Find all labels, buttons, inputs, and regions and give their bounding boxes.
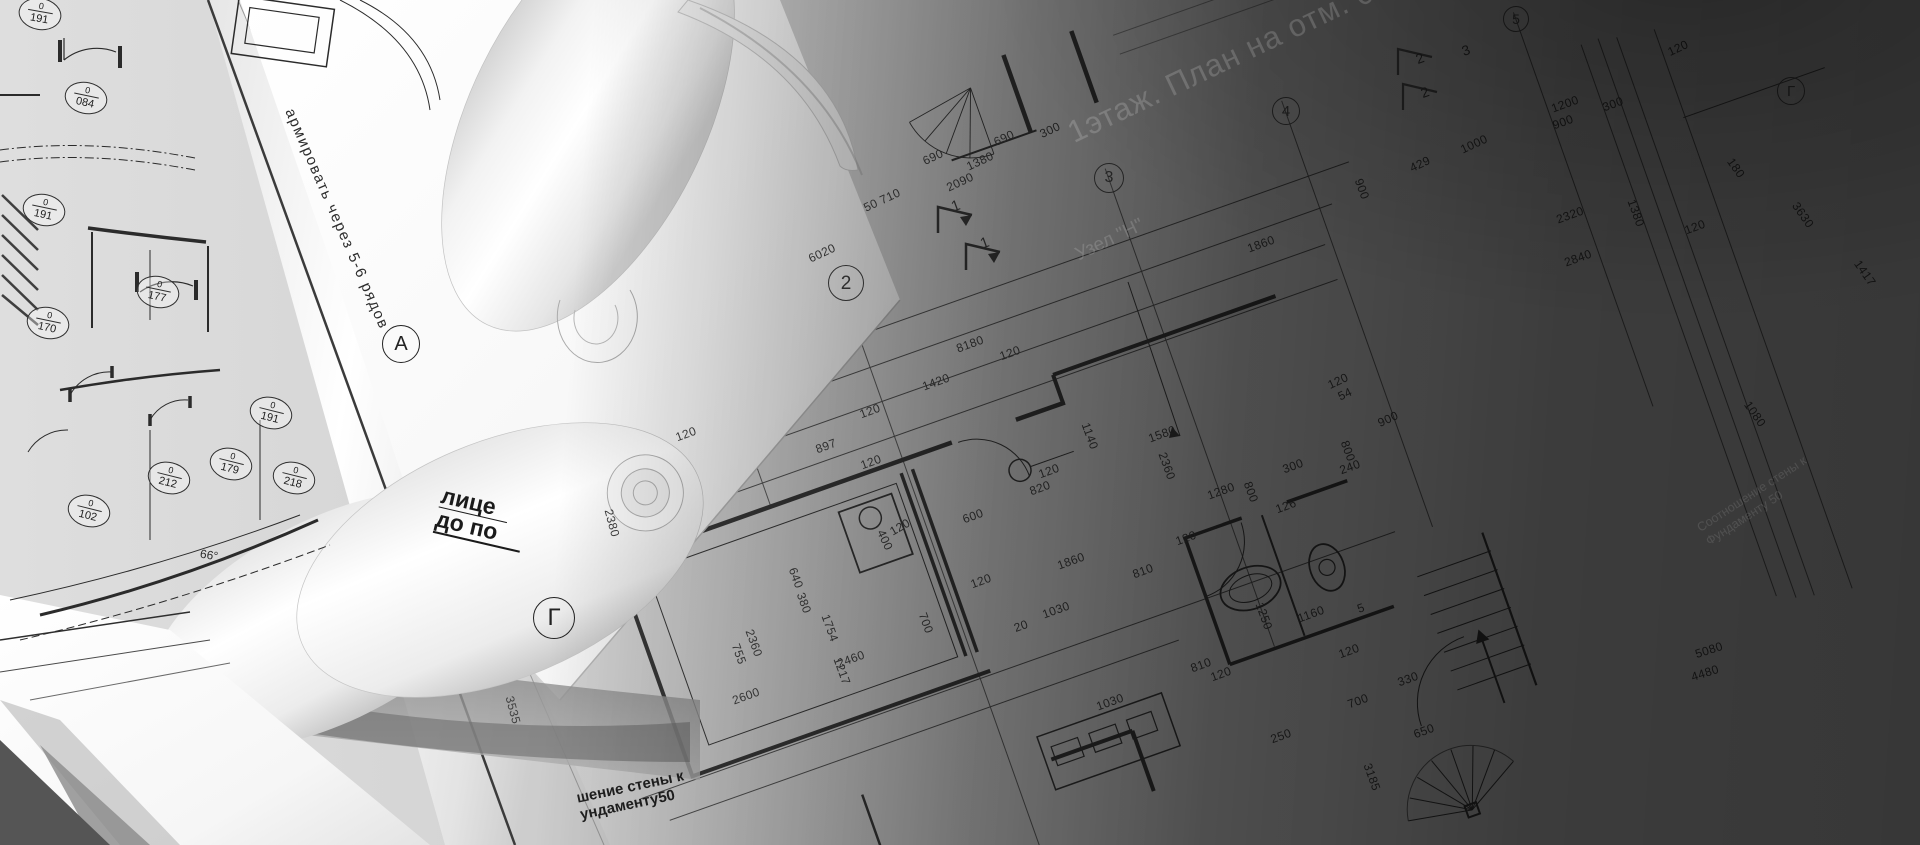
- dimension-label: 50 710: [862, 186, 903, 213]
- dimension-label: 120: [1174, 529, 1198, 548]
- dimension-label: 120: [674, 425, 698, 444]
- wall-foundation-note-left: шение стены к ундаменту50: [575, 767, 689, 823]
- room-tag: 0170: [24, 303, 73, 343]
- dimension-label: 2360: [1157, 451, 1178, 482]
- dimension-label: 3185: [1362, 762, 1383, 793]
- dimension-label: 380: [795, 591, 814, 615]
- dimension-label: 429: [1408, 154, 1432, 174]
- dimension-label: 1380: [1626, 198, 1647, 229]
- room-tag: 0191: [16, 0, 64, 33]
- dimension-label: 2380: [603, 508, 622, 538]
- dimension-label: 700: [917, 611, 936, 635]
- dimension-label: 1860: [1246, 234, 1277, 255]
- dimension-label: 120: [1037, 462, 1061, 481]
- dimension-label: 1140: [1080, 421, 1101, 451]
- dimension-label: 5080: [1694, 640, 1725, 660]
- dimension-label: 120: [1337, 642, 1361, 661]
- dimension-label: 2: [1414, 50, 1426, 66]
- dimension-label: 1: [978, 234, 991, 251]
- dimension-label: 120: [1666, 38, 1690, 58]
- dimension-label: 1080: [1742, 399, 1768, 429]
- dimension-label: 120: [998, 344, 1022, 363]
- face-note-line2: до по: [433, 508, 525, 553]
- dimension-label: 3535: [504, 695, 523, 725]
- dimension-label: 330: [1396, 670, 1420, 689]
- dimension-label: 2090: [945, 171, 976, 194]
- room-tag-value: 191: [30, 205, 57, 224]
- dimension-label: 20: [1012, 618, 1029, 634]
- blueprint-photo-scene: армировать через 5-6 рядов лице до по ше…: [0, 0, 1920, 845]
- dimension-label: 1: [949, 197, 962, 214]
- dimension-label: 300: [1038, 120, 1062, 140]
- room-tag-value: 084: [72, 93, 99, 112]
- dimension-label: 900: [1376, 409, 1400, 429]
- dimension-label: 126: [1274, 497, 1298, 516]
- dimension-label: 1030: [1041, 600, 1072, 621]
- room-tag: 0218: [269, 457, 318, 498]
- room-tag-value: 170: [34, 318, 61, 337]
- room-tag: 0191: [20, 190, 69, 230]
- dimension-label: 120: [858, 402, 882, 421]
- dimension-label: 3630: [1790, 200, 1816, 230]
- dimension-label: 180: [1725, 156, 1747, 180]
- dimension-label: 755: [730, 642, 749, 666]
- dimension-label: 820: [1028, 479, 1052, 498]
- reinforcement-note: армировать через 5-6 рядов: [281, 106, 392, 332]
- room-tag-value: 102: [74, 506, 101, 526]
- dimension-label: 690: [921, 147, 945, 167]
- dimension-label: 2840: [1563, 248, 1594, 269]
- room-tag-value: 191: [256, 408, 283, 428]
- dimension-label: 5: [1356, 601, 1367, 615]
- dimension-label: 1030: [1095, 692, 1126, 713]
- dimension-label: 120: [859, 453, 883, 472]
- dimension-label: 690: [992, 128, 1016, 148]
- dimension-label: 120: [1683, 218, 1707, 237]
- room-tag: 0179: [206, 443, 255, 484]
- dimension-label: 600: [961, 507, 985, 526]
- room-tag: 0084: [62, 78, 111, 118]
- room-tag-value: 191: [26, 9, 52, 27]
- dimension-label: 650: [1412, 722, 1436, 741]
- dimension-label: 1280: [1206, 481, 1237, 502]
- dimension-label: 300: [1601, 95, 1625, 114]
- axis-bubble: 4: [1272, 97, 1300, 125]
- dimension-label: 1200: [1550, 94, 1581, 115]
- dimension-label: 1160: [1296, 604, 1326, 625]
- dimension-label: 1580: [1147, 424, 1178, 445]
- dimension-label: 2600: [731, 686, 762, 707]
- dimension-label: 1420: [921, 372, 952, 393]
- dimension-label: 120: [888, 516, 912, 537]
- dimension-label: 120: [969, 572, 993, 591]
- dimension-label: 240: [1338, 458, 1362, 477]
- axis-bubble: Г: [1777, 77, 1805, 105]
- dimension-label: 640: [787, 566, 806, 590]
- room-tag: 0102: [64, 490, 113, 531]
- dimension-label: 250: [1269, 727, 1293, 746]
- dimension-label: 3: [1460, 42, 1472, 58]
- dimension-label: 800: [1242, 480, 1261, 504]
- axis-bubble: Г: [533, 597, 575, 639]
- room-tag-value: 212: [154, 473, 181, 493]
- room-tag: 0177: [134, 272, 183, 312]
- axis-bubble: А: [382, 325, 420, 363]
- dimension-label: 6020: [807, 242, 838, 265]
- annotation-text-layer: армировать через 5-6 рядов лице до по ше…: [0, 0, 1920, 845]
- dimension-label: 700: [1346, 692, 1370, 711]
- dimension-label: 1754: [820, 613, 841, 644]
- dimension-label: 897: [814, 437, 838, 456]
- room-tag-value: 177: [144, 287, 171, 306]
- room-tag: 0191: [246, 392, 295, 433]
- dimension-label: 4480: [1690, 663, 1721, 683]
- axis-bubble: 5: [1503, 6, 1529, 32]
- room-tag: 0212: [144, 457, 193, 498]
- dimension-label: 1250: [1254, 601, 1275, 632]
- dimension-label: 8180: [955, 334, 986, 355]
- dimension-label: 300: [1281, 457, 1305, 476]
- dimension-label: 1000: [1459, 133, 1490, 156]
- dimension-label: 900: [1551, 113, 1575, 132]
- dimension-label: 900: [1353, 177, 1372, 201]
- room-tag-value: 218: [279, 473, 306, 493]
- room-tag-value: 179: [216, 459, 243, 479]
- face-note: лице до по: [433, 484, 531, 553]
- axis-bubble: 2: [828, 265, 864, 301]
- dimension-label: 810: [1131, 562, 1155, 581]
- axis-bubble: 3: [1094, 163, 1124, 193]
- dimension-label: 2: [1419, 84, 1431, 100]
- dimension-label: 2320: [1555, 205, 1586, 226]
- dimension-label: 1417: [1852, 258, 1878, 288]
- dimension-label: 54: [1336, 386, 1354, 403]
- dimension-label: 1860: [1056, 551, 1087, 572]
- angle-label: 66°: [199, 547, 219, 564]
